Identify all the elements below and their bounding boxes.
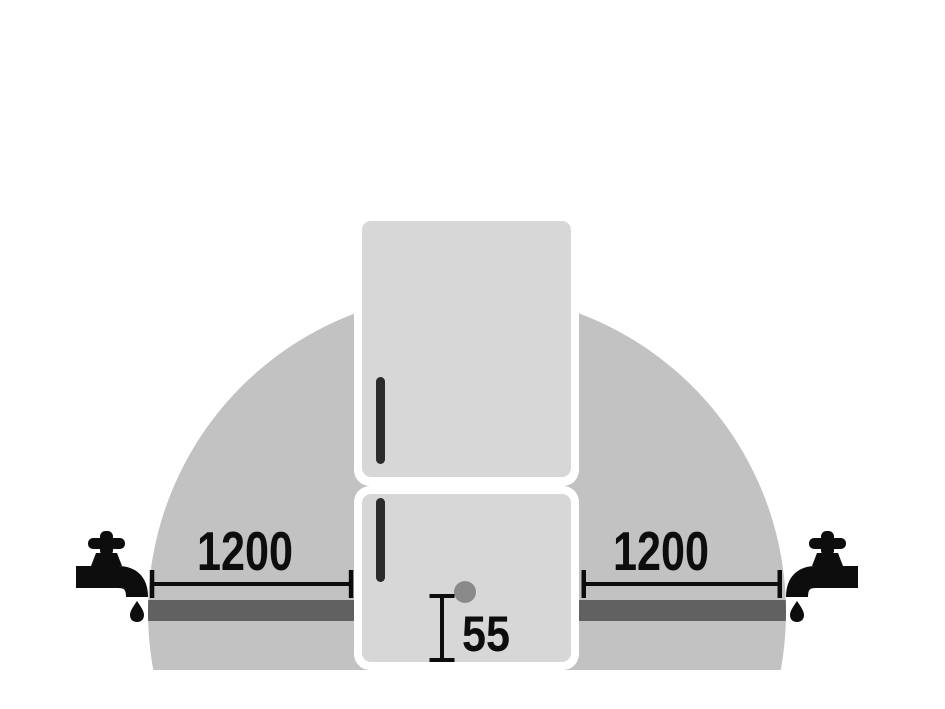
right-clearance-label: 1200 <box>613 520 709 582</box>
faucet-icon-right <box>790 531 858 622</box>
right-dimension-tick-outer <box>778 570 783 598</box>
left-dimension-line <box>152 582 351 586</box>
diagram-canvas: 1200 1200 55 <box>0 0 945 709</box>
water-connection-dot <box>454 581 476 603</box>
hose-dimension-tick-bottom <box>430 658 455 662</box>
left-clearance-label: 1200 <box>197 520 293 582</box>
fridge-top-door-handle <box>376 377 385 464</box>
fridge-bottom-door-handle <box>376 498 385 582</box>
hose-dimension-line <box>440 596 444 660</box>
right-dimension-line <box>584 582 780 586</box>
left-dimension-tick-inner <box>349 570 354 598</box>
left-dimension-tick-outer <box>150 570 155 598</box>
right-dimension-tick-inner <box>582 570 587 598</box>
fridge-top-door <box>362 221 571 477</box>
installation-diagram: 1200 1200 55 <box>0 0 945 709</box>
faucet-icon-left <box>76 531 144 622</box>
hose-dimension-tick-top <box>430 594 455 598</box>
hose-height-label: 55 <box>462 606 510 662</box>
